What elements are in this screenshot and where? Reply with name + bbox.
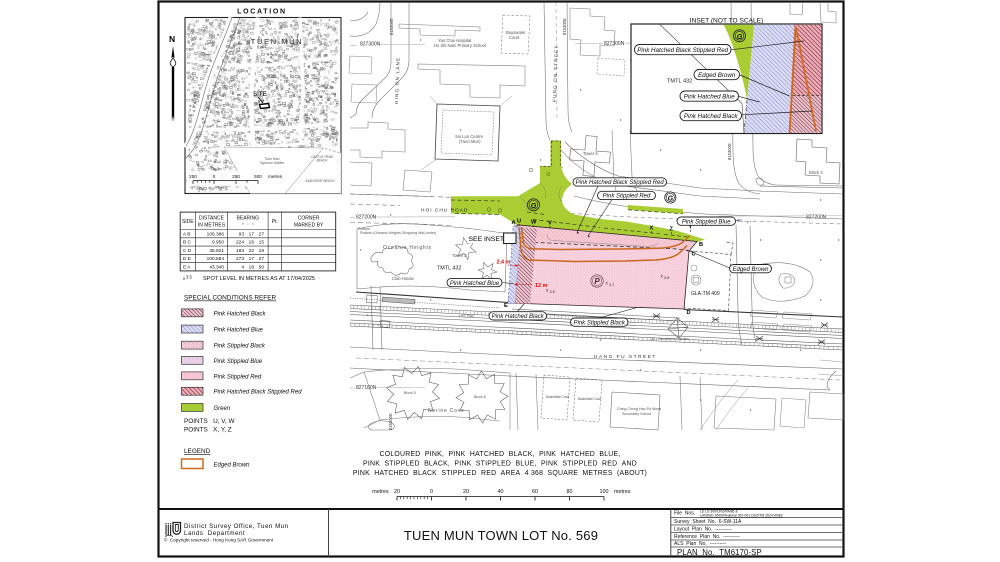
svg-text:(Tuen Mun): (Tuen Mun) [459, 139, 481, 144]
svg-text:POINTS X, Y, Z: POINTS X, Y, Z [184, 427, 232, 434]
svg-text:LEGEND: LEGEND [184, 448, 211, 455]
svg-text:Tower 3: Tower 3 [452, 253, 467, 258]
svg-text:Block 6: Block 6 [474, 395, 486, 399]
svg-text:15: 15 [259, 240, 265, 246]
svg-text:815300E: 815300E [389, 18, 394, 35]
svg-text:40: 40 [498, 489, 504, 495]
svg-text:0: 0 [430, 489, 433, 495]
svg-text:KADOORIE BEACH: KADOORIE BEACH [306, 179, 335, 183]
svg-text:D E: D E [183, 256, 191, 262]
svg-text:12 m: 12 m [535, 283, 547, 289]
svg-text:IN METRES: IN METRES [198, 223, 226, 229]
svg-text:815300E: 815300E [727, 143, 732, 160]
svg-text:SIDE: SIDE [182, 219, 194, 225]
svg-text:DISTANCE: DISTANCE [199, 216, 225, 222]
svg-text:G: G [531, 201, 537, 210]
svg-text:35.821: 35.821 [209, 248, 224, 254]
svg-text:Tower 5: Tower 5 [583, 151, 598, 156]
svg-text:Nerine Cove: Nerine Cove [428, 408, 465, 414]
svg-text:Oceanio Heights: Oceanio Heights [383, 245, 432, 251]
svg-text:22: 22 [249, 248, 255, 254]
svg-text:250: 250 [189, 174, 197, 179]
svg-text:100.584: 100.584 [207, 256, 225, 262]
svg-text:3.8: 3.8 [664, 276, 669, 280]
svg-text:Z: Z [670, 227, 674, 233]
svg-text:Edged Brown: Edged Brown [732, 267, 769, 273]
svg-text:Pink Hatched Black: Pink Hatched Black [214, 311, 267, 317]
svg-text:3.5: 3.5 [186, 275, 192, 280]
svg-text:Pink Stippled Black: Pink Stippled Black [214, 344, 266, 350]
svg-text:Podium (Oceanio Heights Shoppi: Podium (Oceanio Heights Shopping Mall un… [360, 231, 436, 235]
svg-text:Up - Goodview Garden: Up - Goodview Garden [650, 337, 689, 341]
svg-text:Pink Stippled Blue: Pink Stippled Blue [682, 219, 731, 225]
svg-text:27: 27 [259, 231, 265, 237]
svg-text:Pink Stippled Blue: Pink Stippled Blue [214, 359, 263, 365]
svg-text:Pt.: Pt. [272, 219, 278, 225]
svg-text:PINK STIPPLED BLACK, PINK: PINK STIPPLED BLACK, PINK STIPPLED BLUE,… [363, 461, 637, 468]
svg-text:Pink Hatched Black Stippled Re: Pink Hatched Black Stippled Red [576, 180, 665, 186]
svg-text:Pink Stippled Red: Pink Stippled Red [214, 374, 262, 380]
svg-text:Pink Hatched Blue: Pink Hatched Blue [450, 281, 500, 287]
svg-text:50: 50 [259, 264, 265, 270]
svg-text:TMTL 432: TMTL 432 [667, 79, 692, 85]
svg-text:4: 4 [241, 264, 244, 270]
svg-text:BEARING: BEARING [237, 216, 260, 222]
svg-text:93: 93 [239, 231, 245, 237]
svg-text:B C: B C [183, 240, 192, 246]
svg-text:metres: metres [614, 489, 631, 495]
svg-text:V: V [548, 221, 552, 227]
svg-text:815300E: 815300E [562, 18, 567, 35]
svg-text:100: 100 [600, 489, 609, 495]
svg-text:PLAN No. TM6170-SP: PLAN No. TM6170-SP [677, 548, 762, 557]
svg-text:Reference Plan No. --------: Reference Plan No. ---------- [674, 534, 740, 540]
svg-text:183: 183 [236, 248, 244, 254]
svg-text:metres: metres [268, 174, 283, 179]
svg-text:20: 20 [394, 489, 400, 495]
svg-text:HANG FU STREET: HANG FU STREET [594, 354, 657, 360]
svg-text:COLOURED PINK, PINK HATCHED: COLOURED PINK, PINK HATCHED BLACK, PINK … [379, 451, 620, 458]
svg-text:17: 17 [249, 231, 255, 237]
svg-text:Basketball Court: Basketball Court [578, 397, 602, 401]
svg-text:Court: Court [509, 35, 520, 40]
svg-text:43.340: 43.340 [209, 264, 224, 270]
svg-text:Pink Hatched Blue: Pink Hatched Blue [214, 328, 264, 334]
svg-text:Pink Stippled Black: Pink Stippled Black [574, 320, 626, 326]
svg-text:LOCATION: LOCATION [237, 9, 287, 16]
svg-text:E: E [504, 303, 508, 309]
svg-text:17: 17 [249, 256, 255, 262]
svg-text:Survey Sheet No. 6-SW-11A: Survey Sheet No. 6-SW-11A [674, 519, 742, 525]
svg-text:0: 0 [213, 174, 216, 179]
svg-text:Ho Sik Nam Primary School: Ho Sik Nam Primary School [434, 43, 486, 48]
svg-text:Pink Hatched Black Stippled Re: Pink Hatched Black Stippled Red [214, 390, 303, 396]
svg-text:Pink Hatched Black: Pink Hatched Black [492, 314, 545, 320]
svg-text:LRT Rail: LRT Rail [459, 314, 474, 318]
svg-text:Pink Stippled Red: Pink Stippled Red [603, 194, 651, 200]
svg-text:District Survey Office, Tuen M: District Survey Office, Tuen Mun [184, 523, 289, 530]
svg-text:X: X [650, 226, 654, 232]
svg-text:Pink Hatched Black: Pink Hatched Black [684, 113, 739, 120]
svg-text:224: 224 [236, 240, 244, 246]
svg-text:MARKED BY: MARKED BY [294, 223, 324, 229]
svg-text:POINTS U, V, W: POINTS U, V, W [184, 418, 236, 425]
svg-text:9.950: 9.950 [212, 240, 224, 246]
svg-text:273: 273 [236, 256, 244, 262]
svg-text:500: 500 [254, 174, 262, 179]
svg-text:Green: Green [214, 406, 231, 412]
svg-text:18: 18 [249, 264, 255, 270]
svg-text:SEE INSET: SEE INSET [469, 236, 505, 243]
svg-text:N: N [169, 34, 175, 44]
svg-text:250: 250 [232, 174, 240, 179]
svg-text:Basketball Court: Basketball Court [546, 395, 570, 399]
svg-text:G: G [668, 195, 674, 202]
svg-text:HOI CHU ROAD: HOI CHU ROAD [421, 208, 468, 214]
svg-text:P: P [594, 277, 600, 286]
svg-text:Typhoon Shelter: Typhoon Shelter [260, 161, 286, 165]
svg-text:Block 3: Block 3 [809, 170, 823, 175]
svg-text:2.4 m: 2.4 m [497, 260, 511, 266]
svg-text:827200N: 827200N [356, 215, 377, 221]
svg-text:Ching Chung Hau Po Woon: Ching Chung Hau Po Woon [617, 407, 661, 411]
svg-text:TUEN MUN: TUEN MUN [251, 37, 303, 46]
svg-text:SPOT LEVEL IN METRES AS AT 17/: SPOT LEVEL IN METRES AS AT 17/04/2025 [203, 276, 315, 282]
svg-text:106.386: 106.386 [207, 231, 225, 237]
svg-text:CORNER: CORNER [298, 216, 320, 222]
svg-text:Pink Hatched Blue: Pink Hatched Blue [684, 94, 735, 101]
svg-text:827100N: 827100N [356, 385, 377, 391]
svg-text:U: U [517, 219, 521, 225]
svg-text:ALS Plan No. ----------: ALS Plan No. ---------- [674, 541, 727, 547]
svg-text:Edged Brown: Edged Brown [214, 463, 251, 469]
svg-text:20: 20 [463, 489, 469, 495]
svg-text:BEACH: BEACH [317, 159, 329, 163]
svg-text:80: 80 [567, 489, 573, 495]
svg-text:© Copyright reserved - Hong K: © Copyright reserved - Hong Kong SAR Gov… [164, 537, 274, 543]
svg-text:PINK HATCHED BLACK STIPPLED: PINK HATCHED BLACK STIPPLED RED AREA 4 3… [353, 470, 647, 477]
svg-text:° ' ": ° ' " [242, 223, 254, 228]
svg-text:TUEN MUN TOWN LOT No. 569: TUEN MUN TOWN LOT No. 569 [404, 528, 598, 543]
svg-text:Block 5: Block 5 [404, 391, 416, 395]
svg-text:827200N: 827200N [806, 215, 827, 221]
svg-text:D: D [687, 310, 691, 316]
svg-text:Secondary School: Secondary School [622, 412, 651, 416]
svg-text:W: W [531, 220, 537, 226]
svg-text:Lands Department: Lands Department [184, 530, 245, 537]
svg-text:C D: C D [183, 248, 192, 254]
svg-text:19: 19 [259, 248, 265, 254]
svg-text:GLA-TM 409: GLA-TM 409 [691, 291, 720, 297]
svg-text:metres: metres [372, 489, 389, 495]
svg-text:TMTL 432: TMTL 432 [437, 266, 461, 272]
svg-text:Layout Plan No. ----------: Layout Plan No. ---------- [674, 527, 732, 533]
svg-text:815300E: 815300E [388, 413, 393, 430]
svg-text:Pink Hatched Black Stippled Re: Pink Hatched Black Stippled Red [637, 47, 728, 54]
svg-text:3.7: 3.7 [609, 283, 614, 287]
svg-text:Club House: Club House [392, 276, 415, 281]
svg-text:SPECIAL CONDITIONS REFER: SPECIAL CONDITIONS REFER [184, 295, 276, 302]
svg-text:File Nos.: File Nos. [674, 511, 695, 517]
svg-text:60: 60 [532, 489, 538, 495]
svg-text:3.5: 3.5 [550, 290, 555, 294]
svg-text:G: G [737, 32, 743, 41]
svg-text:16: 16 [249, 240, 255, 246]
svg-text:Podium: Podium [358, 227, 370, 231]
svg-text:A B: A B [183, 231, 190, 237]
svg-text:827300N: 827300N [604, 41, 625, 47]
svg-text:Edged Brown: Edged Brown [698, 72, 736, 79]
svg-text:LANDSD SMO/Regional 067-001 DS: LANDSD SMO/Regional 067-001 DSO/TM 2024 … [700, 514, 783, 518]
svg-text:E A: E A [183, 264, 191, 270]
svg-text:27: 27 [259, 256, 265, 262]
svg-text:SITE: SITE [253, 91, 267, 98]
svg-text:B: B [699, 242, 703, 248]
svg-text:827300N: 827300N [360, 42, 381, 48]
